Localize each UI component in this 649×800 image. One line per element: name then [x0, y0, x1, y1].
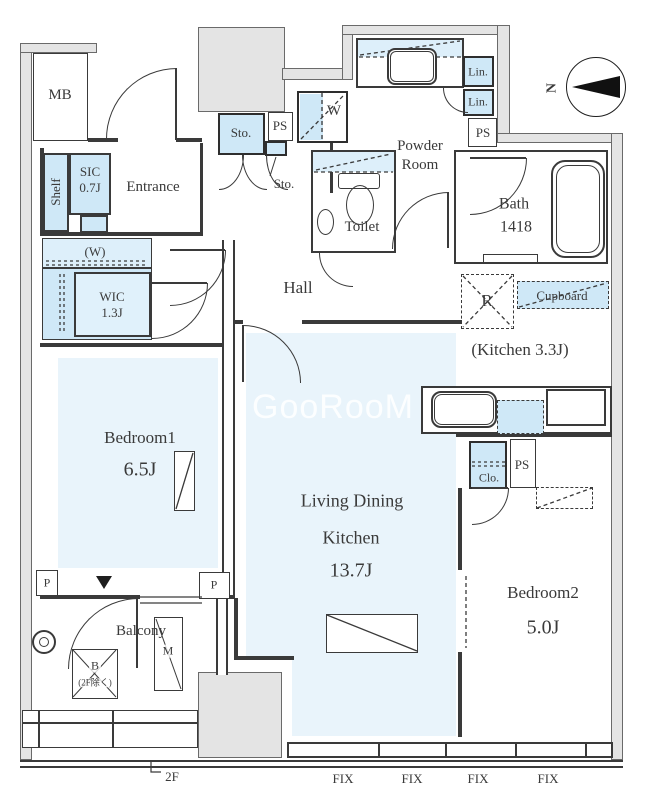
bottom-line-2 — [20, 766, 623, 768]
fix-window-band — [287, 742, 613, 758]
topright-wall-h — [497, 133, 623, 143]
pipe-left-label: P — [44, 577, 51, 590]
toilet-side-basin — [317, 209, 334, 235]
m-box-label: M — [162, 645, 175, 658]
entrance-door-leaf — [175, 68, 177, 140]
upper-cabinet-bedroom2 — [536, 487, 593, 509]
railing-line — [22, 722, 198, 724]
ldk-label-1: Living Dining — [301, 492, 404, 511]
storage-small-label: Sto. — [274, 177, 295, 191]
powder-door-arc — [392, 192, 449, 249]
storage-door-right-arc — [242, 155, 267, 190]
fix-label-3: FIX — [468, 772, 489, 786]
mb-label: MB — [48, 88, 71, 104]
floor-plan: GooRooM MB Shelf SIC 0.7J Entrance Sto. … — [0, 0, 649, 800]
watermark: GooRooM — [228, 388, 438, 430]
ps-right-label: PS — [476, 126, 490, 140]
kitchen-open-space — [497, 400, 544, 434]
bathtub-inner — [556, 165, 600, 253]
balcony-drain-center — [39, 637, 49, 647]
stove — [546, 389, 606, 426]
fridge-label: R — [481, 292, 492, 310]
outer-wall-left — [20, 43, 32, 760]
pillar-top-center — [198, 27, 285, 112]
linen-door-arc — [443, 88, 468, 113]
vestibule-right-wall — [200, 143, 203, 236]
toilet-door-arc — [319, 253, 353, 287]
bedroom2-left-wall-b — [458, 652, 462, 737]
hall-ldk-door-leaf — [242, 325, 244, 382]
fix-label-2: FIX — [402, 772, 423, 786]
fix-mullion-3 — [515, 742, 517, 758]
outer-wall-top-left — [20, 43, 97, 53]
hall-ldk-wall-a — [233, 320, 243, 324]
hall-label: Hall — [283, 279, 312, 297]
railing-post-1 — [38, 710, 40, 748]
washer-box-left — [300, 94, 323, 140]
powder-room-label-2: Room — [402, 158, 439, 174]
cupboard-label: Cupboard — [536, 289, 587, 303]
compass-north-label: N — [546, 83, 561, 93]
hall-ldk-wall-b — [302, 320, 462, 324]
bath-label: Bath — [499, 197, 529, 214]
ldk-west-wall-b — [234, 656, 294, 660]
pipe-right-label: P — [211, 579, 218, 592]
bath-door-leaf — [470, 157, 526, 159]
bottom-line-1 — [20, 760, 623, 762]
wic-door-leaf — [152, 282, 207, 284]
floor-mark-label: 2F — [165, 770, 179, 784]
fix-label-1: FIX — [333, 772, 354, 786]
b-box-note-label: (2F除く) — [78, 678, 112, 687]
fix-mullion-2 — [445, 742, 447, 758]
topright-wall-v — [497, 25, 510, 143]
bath-step — [483, 254, 538, 263]
balcony-railing — [22, 710, 198, 748]
bedroom2-door-leaf — [472, 487, 508, 489]
toilet-label: Toilet — [345, 220, 380, 236]
railing-post-2 — [112, 710, 114, 748]
bedroom2-left-wall-a — [458, 488, 462, 570]
b-box-label: B — [89, 660, 101, 673]
ldk-floor-lower — [292, 660, 456, 736]
bed-symbol — [174, 451, 195, 511]
ldk-label-2: Kitchen — [323, 529, 380, 548]
wic-label: WIC — [99, 290, 124, 304]
closet-label: Clo. — [479, 472, 499, 485]
toilet-shelf — [313, 152, 394, 172]
powder-room-label-1: Powder — [397, 139, 443, 155]
sic-closet-tab — [80, 215, 108, 233]
kitchen-label: (Kitchen 3.3J) — [471, 341, 568, 359]
entrance-top-wall-b — [176, 138, 202, 142]
vanity-sink-inner — [390, 51, 434, 82]
sic-size-label: 0.7J — [79, 181, 100, 195]
washer-space-label: (W) — [85, 245, 106, 259]
pillar-bottom — [198, 672, 282, 758]
kitchen-sink-inner — [434, 394, 494, 425]
entrance-bottom-wall — [40, 232, 202, 236]
entrance-door-arc — [106, 68, 177, 139]
wic-size-label: 1.3J — [101, 306, 122, 320]
fix-mullion-1 — [378, 742, 380, 758]
storage-small — [265, 141, 287, 156]
outer-wall-right — [611, 133, 623, 760]
linen-top-label: Lin. — [468, 66, 488, 79]
bedroom2-door-arc — [472, 488, 509, 525]
shelf-label: Shelf — [49, 178, 63, 205]
fix-label-4: FIX — [538, 772, 559, 786]
sic-label: SIC — [80, 165, 100, 179]
storage-door-left-arc — [219, 155, 244, 190]
ps-bedroom2-label: PS — [515, 458, 529, 472]
hall-vestibule-door-leaf — [170, 249, 225, 251]
ldk-west-wall — [234, 598, 238, 660]
powder-door-leaf — [447, 192, 449, 248]
compass-needle — [572, 76, 620, 98]
wic-door-arc — [152, 283, 208, 339]
bedroom2-size-label: 5.0J — [527, 618, 560, 639]
storage-large-label: Sto. — [231, 126, 252, 140]
corridor-band-top — [282, 68, 344, 80]
washer-label: W — [327, 104, 341, 120]
linen-bottom-label: Lin. — [468, 96, 488, 109]
bedroom2-label: Bedroom2 — [507, 584, 579, 602]
ps-top-label: PS — [273, 119, 287, 133]
bedroom1-size-label: 6.5J — [124, 460, 157, 481]
balcony-label: Balcony — [116, 624, 166, 640]
balcony-door-marker — [96, 576, 112, 589]
table-symbol — [326, 614, 418, 653]
bedroom1-top-wall — [40, 343, 222, 347]
entrance-label: Entrance — [126, 180, 179, 196]
ldk-size-label: 13.7J — [330, 561, 373, 582]
bath-size-label: 1418 — [500, 220, 532, 237]
fix-mullion-4 — [585, 742, 587, 758]
bedroom1-label: Bedroom1 — [104, 429, 176, 447]
powder-top-wall-h — [342, 25, 510, 35]
